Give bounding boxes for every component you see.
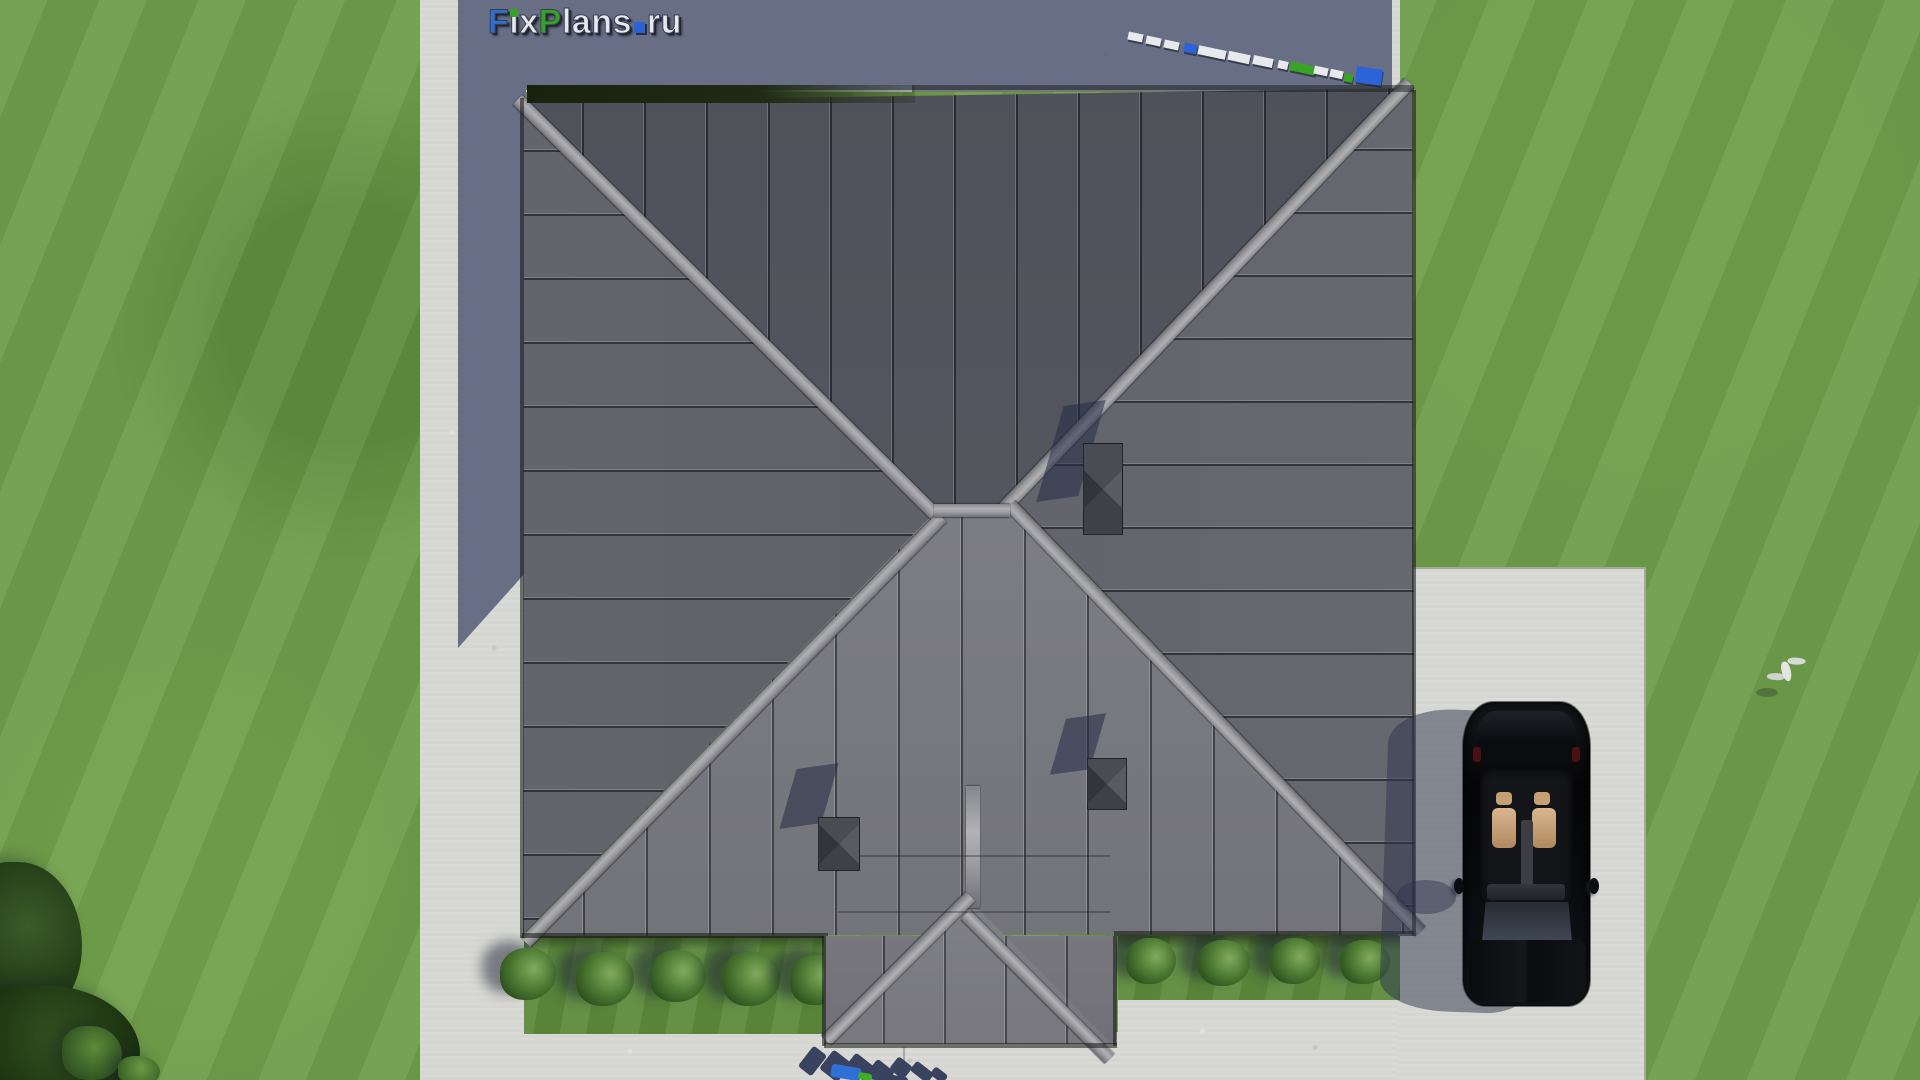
car-rear-deck xyxy=(1477,711,1576,763)
car-dashboard xyxy=(1487,884,1565,900)
car-headrest-left xyxy=(1496,792,1512,805)
car-cabin-interior xyxy=(1480,768,1573,908)
bird-wing-right xyxy=(1788,658,1806,665)
concrete-bottom-right xyxy=(1118,998,1400,1080)
aerial-house-render: FıxPlansru xyxy=(0,0,1920,1080)
logo-i-dot xyxy=(510,9,518,17)
roof-cross-seam-1 xyxy=(838,855,1110,857)
car-seat-right xyxy=(1532,808,1556,848)
car-side-mirror-left xyxy=(1454,878,1464,894)
tree-4 xyxy=(118,1056,160,1080)
car-taillight-left xyxy=(1473,747,1481,762)
roof-top-edge-line xyxy=(912,85,1414,92)
logo-segment-5: lans xyxy=(562,3,632,42)
porch-gable xyxy=(824,896,1116,1046)
car-seat-left xyxy=(1492,808,1516,848)
black-car xyxy=(1463,702,1590,1006)
roof-bottom-edge-right xyxy=(1114,931,1414,936)
fixplans-logo: FıxPlansru xyxy=(488,3,682,42)
logo-segment-7: ru xyxy=(647,3,682,42)
chimney-2 xyxy=(1087,758,1127,810)
roof-top-dark-band xyxy=(527,85,915,103)
porch-ridge xyxy=(966,786,980,908)
roof-bottom-edge-left xyxy=(522,933,828,938)
car-headrest-right xyxy=(1534,792,1550,805)
roof-left-edge xyxy=(520,98,524,938)
chimney-3 xyxy=(818,817,860,871)
car-center-console xyxy=(1521,820,1533,886)
watermark-block-13 xyxy=(1355,66,1383,85)
car-taillight-right xyxy=(1572,747,1580,762)
logo-letter-i: ı xyxy=(509,3,519,42)
porch-bottom-edge xyxy=(824,1043,1117,1048)
watermark-block-12 xyxy=(1343,73,1353,83)
car-side-mirror-right xyxy=(1589,878,1599,894)
watermark-fragment-10 xyxy=(857,1072,872,1080)
porch-right-edge xyxy=(1113,936,1117,1046)
roof-cross-seam-2 xyxy=(838,911,1110,913)
flying-bird xyxy=(1762,647,1814,696)
center-ridge xyxy=(934,504,1010,517)
logo-segment-3: x xyxy=(519,3,538,42)
car-hood xyxy=(1469,940,1585,1002)
logo-segment-4: P xyxy=(539,3,562,42)
logo-segment-1: F xyxy=(488,3,509,42)
car-mirror-shadow xyxy=(1396,880,1456,914)
logo-dot-square xyxy=(634,22,645,33)
car-windshield xyxy=(1482,902,1572,942)
tree-3 xyxy=(62,1026,122,1080)
porch-left-edge xyxy=(822,936,826,1046)
chimney-1 xyxy=(1083,443,1123,535)
